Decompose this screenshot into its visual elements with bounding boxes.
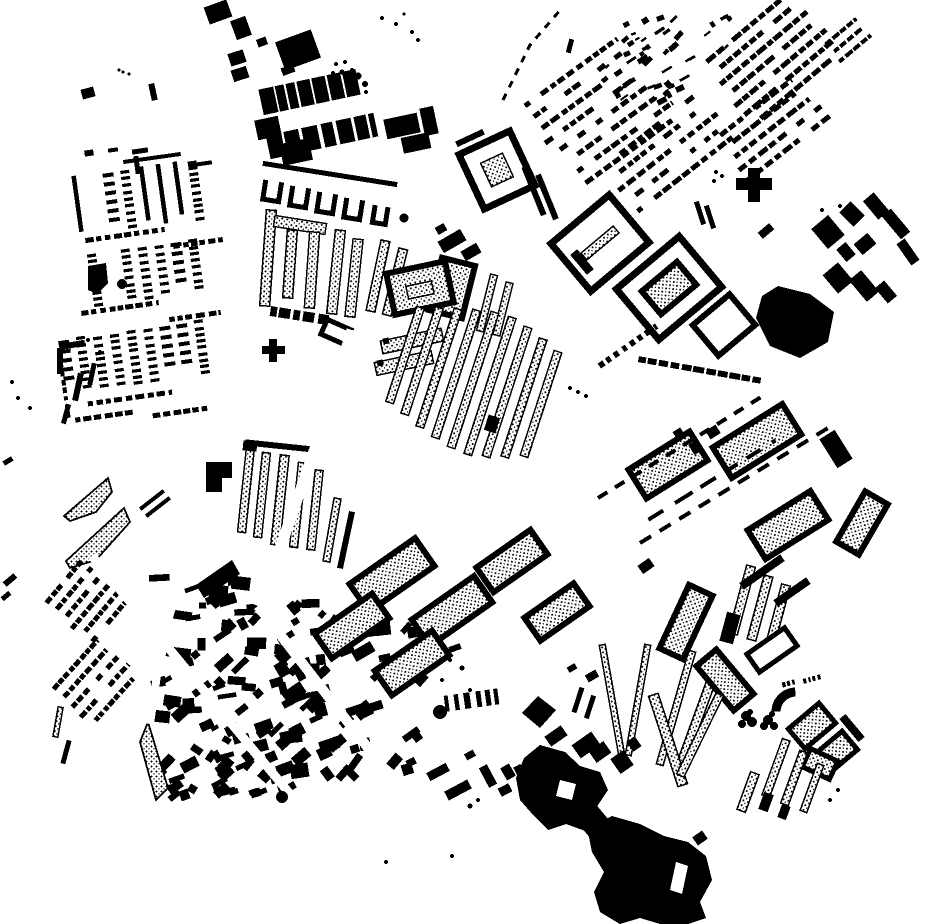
building-bar (304, 232, 319, 309)
building (724, 44, 729, 49)
building-dot (770, 722, 778, 730)
building-dot (433, 705, 447, 719)
terrace-row (88, 390, 173, 407)
building-bar (281, 64, 296, 76)
building-dot (345, 77, 351, 83)
building-bar (464, 750, 476, 761)
perimeter-block (836, 491, 888, 554)
building-bar (419, 106, 439, 136)
terrace-row-grid (42, 555, 133, 646)
building (641, 16, 650, 25)
building-bar (836, 242, 855, 262)
building-bar (572, 687, 585, 713)
building (179, 756, 199, 774)
building-bar (777, 804, 790, 820)
building-bar (811, 215, 845, 249)
perimeter-block (476, 530, 547, 592)
building-dot (476, 798, 480, 802)
building (316, 654, 326, 666)
building (235, 703, 249, 716)
building-bar (758, 223, 775, 239)
building (709, 21, 716, 28)
u-block (287, 185, 311, 210)
building-dot (10, 380, 14, 384)
building-dot (380, 16, 384, 20)
building-polygon (64, 478, 112, 521)
building-dot (350, 68, 354, 72)
building-bar (60, 740, 71, 764)
building-dot (576, 390, 580, 394)
building-bar (307, 470, 323, 550)
building (623, 21, 631, 28)
building-polygon (756, 286, 834, 358)
building-dot (460, 666, 465, 671)
building-dot (714, 170, 718, 174)
building-bar (435, 223, 448, 235)
building-bar (625, 644, 650, 755)
building-bar (238, 447, 255, 532)
building-dot (355, 73, 362, 80)
building-dot (838, 204, 842, 208)
building (289, 600, 304, 615)
building-dot (828, 798, 832, 802)
building-bar (108, 147, 118, 152)
building-bar (243, 440, 258, 451)
building-dot (416, 38, 420, 42)
building-bar (204, 0, 233, 25)
building-dot (450, 854, 454, 858)
building-bar (599, 644, 624, 755)
building (601, 76, 609, 84)
building-dot (820, 208, 824, 212)
building (190, 743, 204, 755)
building (656, 14, 665, 21)
building-bar (498, 783, 513, 797)
building-bar (283, 230, 298, 299)
building-bar (80, 86, 95, 99)
building-bar (323, 498, 341, 562)
building (247, 637, 267, 648)
terrace-row (152, 406, 207, 419)
building-bar (781, 750, 808, 805)
u-block (341, 197, 365, 222)
building-bar (882, 209, 910, 240)
building (199, 602, 206, 608)
building-polygon (522, 696, 556, 728)
building-dot (440, 678, 444, 682)
building-dot (331, 71, 335, 75)
building-bar (145, 496, 171, 518)
building (214, 653, 234, 673)
building-bar (637, 558, 654, 574)
building-bar (227, 49, 246, 66)
building-dot (468, 804, 473, 809)
building-bar (758, 792, 774, 812)
building-dot (738, 720, 746, 728)
building-dot (720, 174, 724, 178)
building-bar (376, 359, 383, 366)
building-dot (118, 69, 121, 72)
perimeter-block (659, 585, 712, 659)
building-dot (336, 80, 341, 85)
building-bar (694, 201, 706, 225)
building (623, 50, 631, 57)
city-figure-ground-map (0, 0, 930, 924)
building-dot (28, 406, 32, 410)
building-dot (394, 22, 398, 26)
building-bar (704, 205, 716, 229)
building-dot (747, 717, 757, 727)
building-dot (384, 860, 388, 864)
terrace-row (803, 674, 821, 683)
building-bar (544, 725, 567, 746)
building-dot (276, 791, 288, 803)
perimeter-block (713, 404, 802, 478)
building-polygon (88, 263, 108, 294)
terrace-row (75, 410, 133, 423)
building-polygon (736, 168, 772, 202)
building-bar (123, 152, 181, 164)
street (92, 556, 300, 806)
u-block (260, 179, 284, 204)
building-dot (712, 179, 716, 183)
building-polygon (588, 816, 712, 924)
building-dot (410, 30, 414, 34)
building (149, 574, 170, 582)
terrace-row (270, 306, 330, 325)
building-dot (16, 396, 20, 400)
perimeter-block (375, 631, 450, 696)
building-bar (566, 39, 574, 54)
building-bar (57, 350, 63, 374)
building-bar (345, 239, 363, 318)
building (675, 84, 685, 93)
building-dot (117, 279, 127, 289)
building-bar (148, 83, 157, 101)
building-bar (737, 772, 759, 813)
building-bar (279, 138, 313, 166)
building (318, 736, 341, 754)
building (317, 610, 326, 619)
building-bar (139, 489, 165, 511)
building (653, 83, 663, 90)
building (250, 787, 262, 798)
building-dot (468, 688, 472, 692)
building (674, 30, 684, 41)
building-dot (393, 755, 398, 760)
building (627, 40, 635, 47)
building-bar (426, 763, 450, 781)
building (231, 656, 250, 674)
building-dot (760, 722, 768, 730)
building-dot (340, 70, 345, 75)
building-polygon (206, 462, 232, 492)
building (679, 74, 690, 82)
building-dot (354, 86, 359, 91)
building-footprints-layer (1, 0, 920, 924)
terrace-row-grid (824, 17, 872, 64)
terrace-row (81, 300, 159, 316)
building-dot (747, 709, 753, 715)
building (685, 55, 695, 62)
building-dot (584, 394, 588, 398)
building-bar (875, 280, 897, 303)
building-dot (448, 658, 452, 662)
building-bar (839, 201, 864, 226)
figure-ground-map-stage (0, 0, 930, 924)
building (291, 747, 312, 767)
building (661, 66, 672, 74)
building-bar (854, 233, 877, 255)
u-block (370, 205, 391, 228)
building-bar (692, 830, 708, 845)
terrace-row (444, 688, 500, 711)
terrace-row-grid (519, 33, 682, 191)
building-bar (53, 707, 63, 737)
terrace-row-grid (50, 636, 140, 727)
building (236, 617, 249, 631)
building-bar (382, 337, 389, 344)
terrace-row (638, 356, 761, 383)
building-bar (230, 16, 252, 40)
building-bar (132, 147, 149, 154)
building (704, 30, 711, 36)
building-bar (896, 238, 919, 265)
building (291, 617, 301, 626)
building-dot (343, 60, 347, 64)
building-bar (337, 511, 355, 569)
building (635, 37, 640, 41)
building (656, 96, 667, 105)
perimeter-block (524, 583, 589, 640)
building-dot (334, 62, 338, 66)
building-dot (400, 214, 409, 223)
building-bar (256, 37, 268, 48)
building-bar (254, 452, 271, 537)
building (320, 766, 335, 782)
building-bar (819, 430, 852, 468)
building-bar (444, 779, 472, 800)
building-bar (585, 670, 599, 683)
u-block (314, 191, 338, 216)
building-bar (567, 663, 578, 673)
building-bar (479, 764, 497, 788)
building-bar (84, 149, 94, 156)
building-dot (86, 338, 90, 342)
curved-building (776, 692, 795, 712)
terrace-row (258, 69, 360, 115)
building (301, 599, 319, 608)
building (626, 56, 637, 65)
building-dot (403, 13, 406, 16)
building-bar (2, 456, 13, 465)
building-dot (362, 81, 368, 87)
building (241, 683, 256, 692)
building (349, 744, 360, 754)
building-bar (823, 262, 854, 293)
building (670, 15, 678, 23)
building-bar (231, 66, 250, 82)
building-bar (460, 243, 481, 262)
building-dot (836, 788, 840, 792)
building (184, 706, 202, 713)
building (222, 735, 232, 745)
building (197, 638, 205, 650)
building-bar (275, 29, 321, 70)
building (662, 48, 669, 55)
building-dot (128, 73, 131, 76)
building-bar (584, 695, 596, 719)
building-dot (568, 386, 572, 390)
building-bar (448, 643, 461, 653)
building (352, 699, 374, 720)
terrace-row (782, 679, 796, 687)
building-dot (364, 90, 368, 94)
perimeter-block (748, 491, 829, 559)
building-bar (500, 763, 516, 780)
building-dot (122, 71, 125, 74)
terrace-row (85, 227, 165, 243)
building-bar (3, 573, 18, 587)
building-dot (769, 711, 775, 717)
building-dot (98, 350, 102, 354)
building-polygon (262, 339, 285, 362)
building (631, 32, 636, 36)
building (641, 37, 647, 43)
building (234, 608, 255, 615)
building (217, 692, 236, 699)
building-bar (1, 591, 12, 601)
building-bar (849, 270, 879, 302)
building-bar (327, 230, 346, 315)
